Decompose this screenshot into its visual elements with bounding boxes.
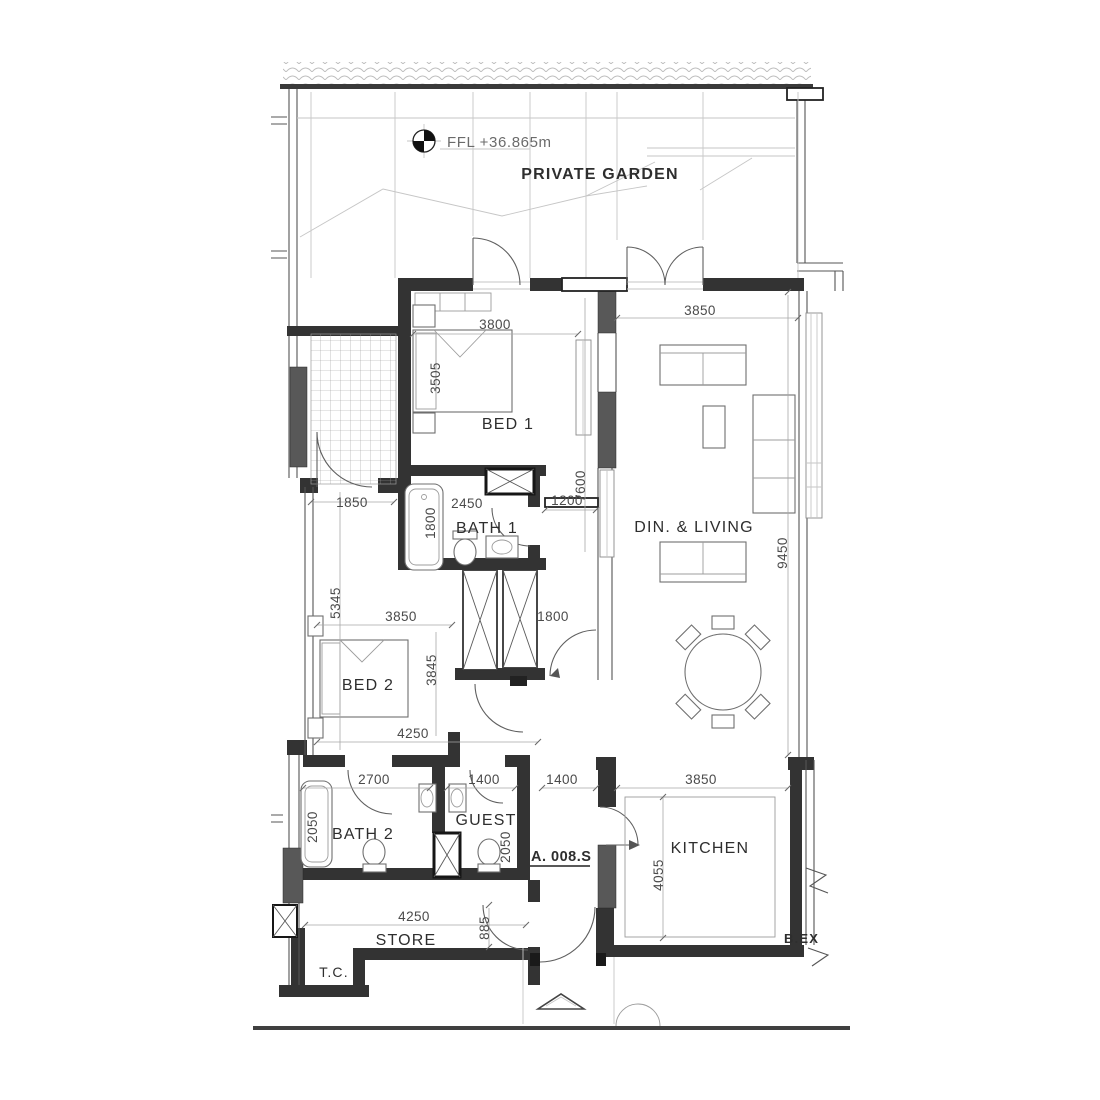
room-label-bath1: BATH 1: [456, 520, 518, 537]
boundary-hatch: [283, 62, 811, 84]
chaise: [753, 395, 795, 513]
dim-glazing-run: 7600: [573, 470, 588, 502]
room-label-store: STORE: [376, 932, 437, 949]
dim-bath1-depth: 1800: [423, 507, 438, 539]
entry-lintel: [562, 278, 627, 291]
boundary-wall: [280, 84, 813, 89]
dim-guest-width: 1400: [468, 772, 500, 787]
garden-landscape-lines: [300, 148, 795, 237]
unit-number-label: A. 008.S: [531, 849, 591, 865]
dim-guest-depth: 2050: [498, 831, 513, 863]
dim-bed1-length: 3505: [428, 362, 443, 394]
garden-right-lintel: [787, 88, 823, 100]
dim-entry-width: 1400: [546, 772, 578, 787]
wall-ticks: [271, 117, 287, 822]
coffee-table: [703, 406, 725, 448]
dim-bath1-width: 2450: [451, 496, 483, 511]
entrance-door-stop-right: [596, 953, 606, 966]
entrance-door-stop-left: [530, 953, 540, 966]
room-label-tc: T.C.: [319, 964, 349, 980]
edge-note-label: B.EX: [784, 931, 819, 946]
dim-living-length: 9450: [775, 537, 790, 569]
room-label-bath2: BATH 2: [332, 826, 394, 843]
garden-door-arc: [473, 238, 520, 285]
bed2-door-hinge: [510, 676, 527, 686]
bath1-toilet: [454, 539, 476, 565]
dim-bath2-width: 2700: [358, 772, 390, 787]
floor-plan-canvas: FFL +36.865m PRIVATE GARDEN: [0, 0, 1100, 1100]
dim-bed2-zone-width: 4250: [397, 726, 429, 741]
room-label-guest: GUEST: [455, 812, 516, 829]
dim-bed1-width: 3800: [479, 317, 511, 332]
dim-bed2-width: 3850: [385, 609, 417, 624]
construction-lines: [297, 92, 798, 278]
dim-terrace-width: 1850: [336, 495, 368, 510]
entrance-marker: [538, 994, 584, 1009]
entrance-triangle-icon: [538, 994, 584, 1009]
terrace-paving: [311, 334, 396, 484]
dim-store-width: 4250: [398, 909, 430, 924]
kitchen-counter: [625, 797, 775, 937]
floor-plan-drawing: FFL +36.865m PRIVATE GARDEN: [0, 0, 1100, 1100]
dim-kitchen-width: 3850: [685, 772, 717, 787]
garden-double-door-arc: [627, 247, 703, 285]
ffl-label: FFL +36.865m: [447, 134, 552, 151]
room-label-kitchen: KITCHEN: [671, 840, 750, 857]
room-label-private-garden: PRIVATE GARDEN: [521, 166, 679, 183]
sheet-border: [253, 1026, 850, 1030]
living-door-arrow-icon: [550, 668, 560, 678]
dim-living-width: 3850: [684, 303, 716, 318]
dim-bed2-length: 5345: [328, 587, 343, 619]
dim-hall-door-width: 1800: [537, 609, 569, 624]
dim-kitchen-depth: 4055: [651, 859, 666, 891]
grid-bubble: [616, 1004, 660, 1026]
dining-table: [685, 634, 761, 710]
room-label-din-living: DIN. & LIVING: [634, 519, 754, 536]
entrance-door-arc: [540, 907, 595, 962]
bath1-sink: [486, 536, 518, 558]
garden-right-wall: [797, 89, 843, 291]
bed2-door-arc: [475, 684, 523, 732]
dim-bath2-tub-length: 2050: [305, 811, 320, 843]
break-line-icon: [806, 868, 828, 966]
room-label-bed1: BED 1: [482, 416, 534, 433]
terrace: [311, 334, 396, 487]
guest-toilet: [478, 839, 500, 865]
dim-store-door-width: 885: [477, 916, 492, 940]
kitchen-door-arc: [600, 807, 638, 845]
living-furniture: [660, 345, 795, 728]
dim-bed2-depth: 3845: [424, 654, 439, 686]
room-label-bed2: BED 2: [342, 677, 394, 694]
